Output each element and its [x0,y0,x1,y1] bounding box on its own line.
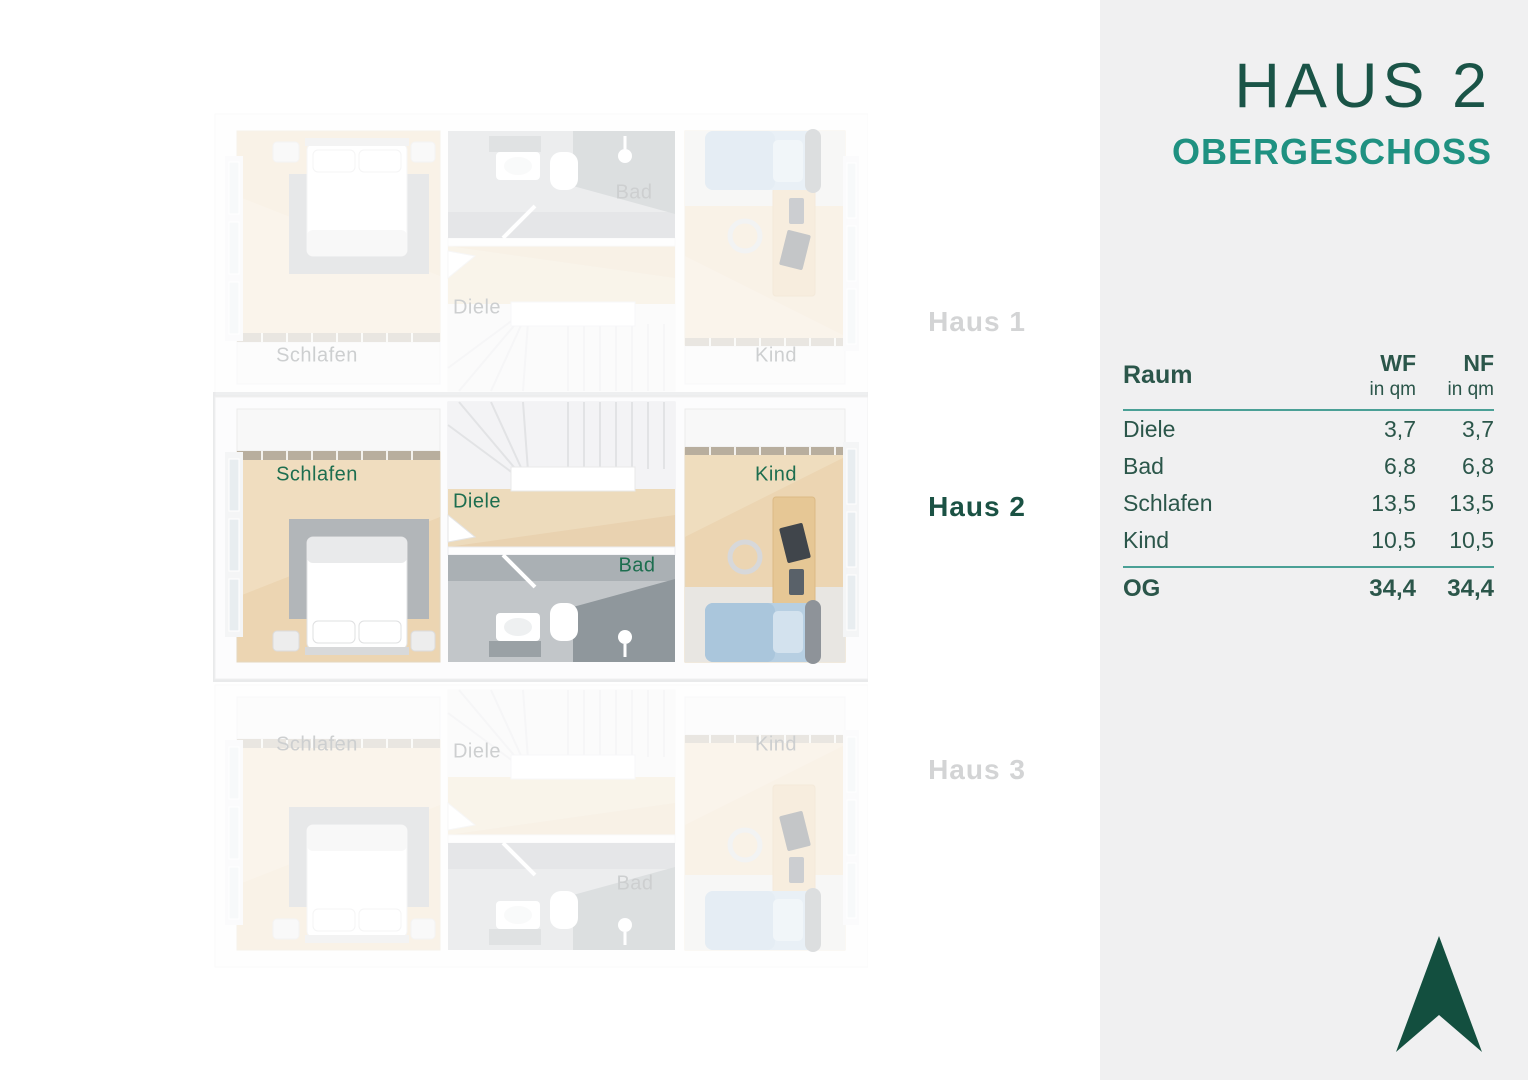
wf-value: 10,5 [1346,527,1416,554]
nf-unit: in qm [1424,378,1494,402]
total-nf-value: 34,4 [1424,575,1494,603]
column-header-room: Raum [1123,361,1346,390]
page-subtitle: OBERGESCHOSS [1172,131,1492,173]
room-label-kind: Kind [755,734,797,757]
floor-haus-3-render [215,685,868,967]
room-label-bad: Bad [616,873,653,896]
room-label-diele: Diele [453,741,501,764]
nf-value: 13,5 [1424,490,1494,517]
room-name: Diele [1123,416,1346,443]
room-label-schlafen: Schlafen [276,734,358,757]
room-label-bad: Bad [618,555,655,578]
north-arrow-icon [1396,936,1482,1052]
column-header-wf: WF in qm [1346,349,1416,402]
area-table-header: Raum WF in qm NF in qm [1123,349,1494,402]
room-label-schlafen: Schlafen [276,345,358,368]
room-label-kind: Kind [755,345,797,368]
nf-value: 3,7 [1424,416,1494,443]
table-row: Schlafen 13,5 13,5 [1123,485,1494,522]
wf-value: 13,5 [1346,490,1416,517]
floorplan-3d-render [213,106,868,970]
wf-unit: in qm [1346,378,1416,402]
house-tab-haus-2[interactable]: Haus 2 [928,491,1026,523]
house-tab-haus-1[interactable]: Haus 1 [928,306,1026,338]
room-label-kind: Kind [755,464,797,487]
floor-haus-2-render [215,397,868,679]
floorplan-area: Schlafen Diele Bad Kind Schlafen Diele B… [0,0,1100,1080]
room-label-diele: Diele [453,297,501,320]
room-name: Kind [1123,527,1346,554]
room-name: Bad [1123,453,1346,480]
room-name: Schlafen [1123,490,1346,517]
table-total-row: OG 34,4 34,4 [1123,568,1494,610]
room-label-diele: Diele [453,491,501,514]
area-table: Raum WF in qm NF in qm Diele 3,7 3,7 Bad… [1123,349,1494,610]
table-row: Bad 6,8 6,8 [1123,448,1494,485]
house-tab-haus-3[interactable]: Haus 3 [928,754,1026,786]
info-panel: HAUS 2 OBERGESCHOSS Raum WF in qm NF in … [1100,0,1528,1080]
wf-value: 6,8 [1346,453,1416,480]
column-header-nf: NF in qm [1424,349,1494,402]
page: Schlafen Diele Bad Kind Schlafen Diele B… [0,0,1528,1080]
nf-label: NF [1463,350,1494,376]
table-row: Diele 3,7 3,7 [1123,411,1494,448]
total-label: OG [1123,575,1346,603]
nf-value: 6,8 [1424,453,1494,480]
room-label-schlafen: Schlafen [276,464,358,487]
table-row: Kind 10,5 10,5 [1123,522,1494,559]
total-wf-value: 34,4 [1346,575,1416,603]
room-label-bad: Bad [615,182,652,205]
nf-value: 10,5 [1424,527,1494,554]
page-title: HAUS 2 [1234,50,1492,122]
wf-label: WF [1380,350,1416,376]
wf-value: 3,7 [1346,416,1416,443]
